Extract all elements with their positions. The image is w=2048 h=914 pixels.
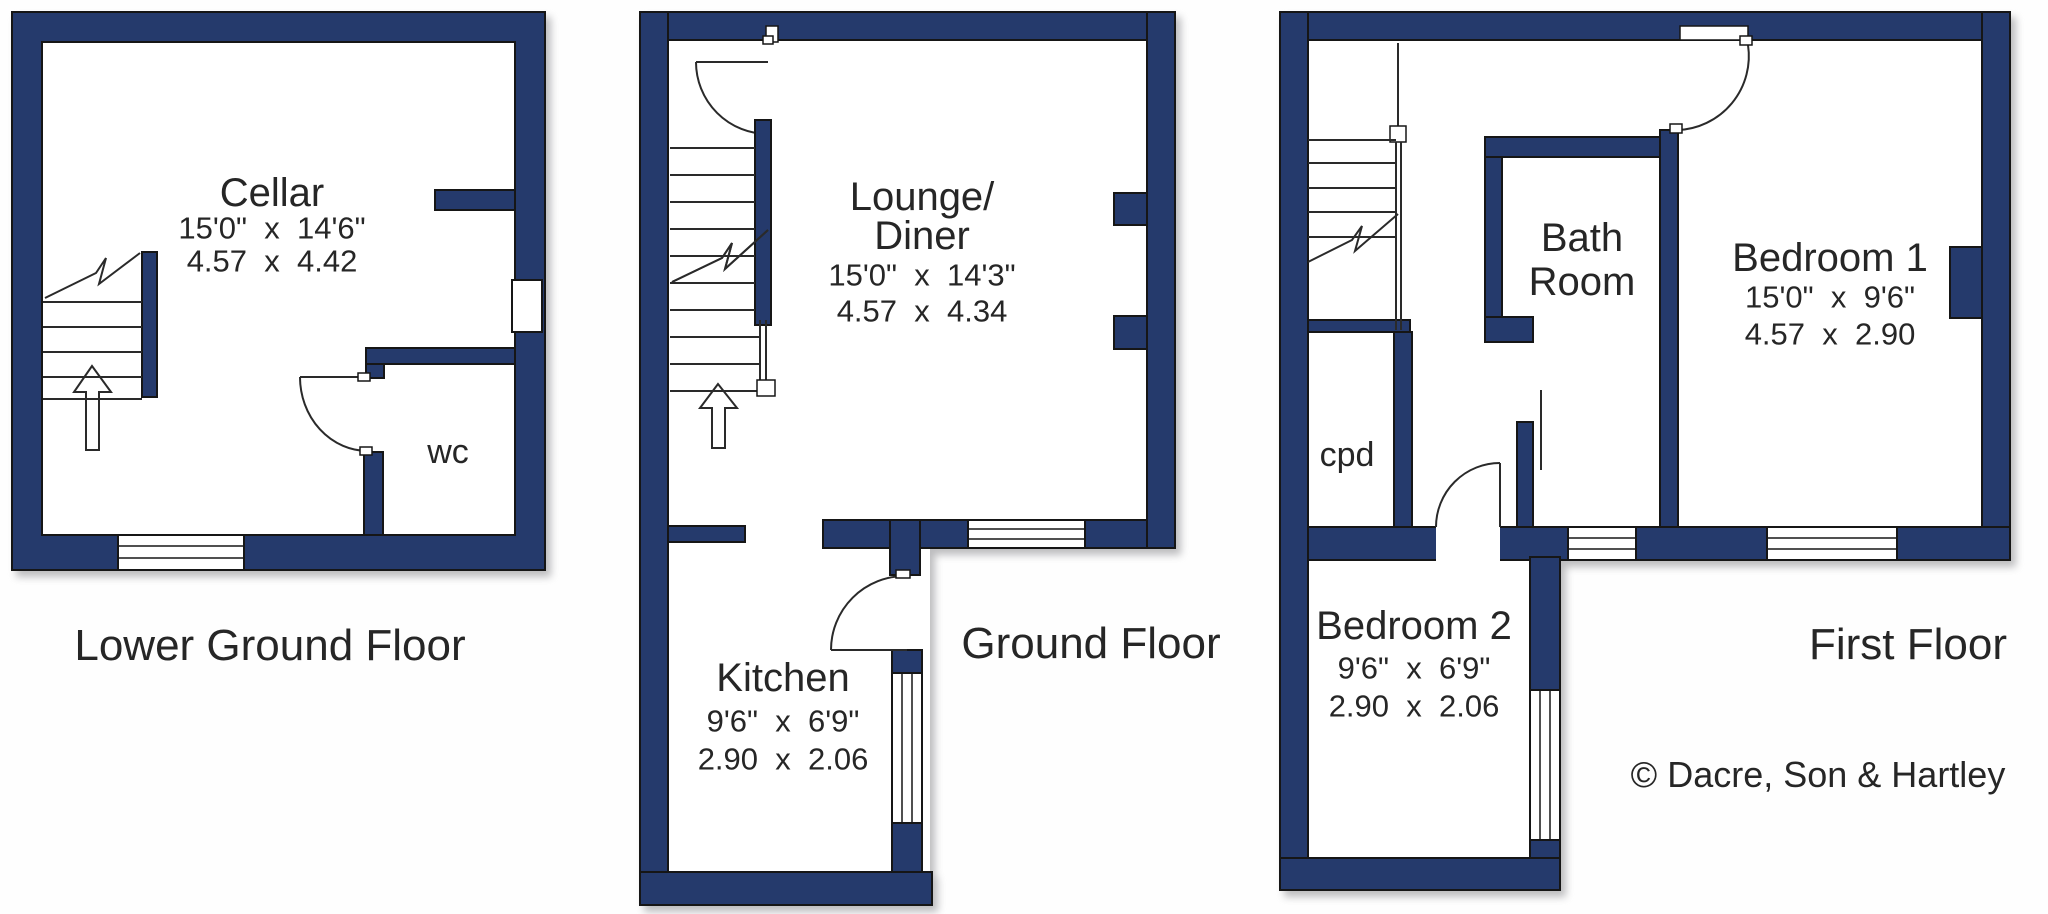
- floorplan-sheet: Cellar 15'0" x 14'6" 4.57 x 4.42 wc Lowe…: [0, 0, 2048, 914]
- ff-bedroom2-doorway: [1436, 525, 1500, 562]
- lounge-dims-metric: 4.57 x 4.34: [837, 296, 1008, 329]
- ff-bedroom2-window: [1530, 690, 1560, 840]
- copyright-notice: © Dacre, Son & Hartley: [1631, 756, 2006, 794]
- lgf-footprint: [12, 12, 545, 570]
- room-label-bath: Bath: [1541, 217, 1623, 259]
- cellar-dims-metric: 4.57 x 4.42: [187, 246, 358, 279]
- lgf-window: [118, 535, 244, 570]
- room-label-wc: wc: [427, 435, 469, 471]
- lgf-wall-stub: [435, 190, 515, 210]
- bedroom2-dims-imperial: 9'6" x 6'9": [1338, 653, 1491, 686]
- room-label-cellar: Cellar: [220, 172, 324, 214]
- lgf-wall-recess: [512, 280, 542, 332]
- bedroom2-dims-metric: 2.90 x 2.06: [1329, 691, 1500, 724]
- room-label-diner: Diner: [874, 215, 970, 257]
- room-label-kitchen: Kitchen: [716, 657, 849, 699]
- gf-kitchen-window: [892, 673, 922, 823]
- floor-label-lower-ground: Lower Ground Floor: [74, 623, 465, 669]
- lounge-dims-imperial: 15'0" x 14'3": [828, 260, 1015, 293]
- floor-label-ground: Ground Floor: [961, 621, 1220, 667]
- floor-label-first: First Floor: [1809, 622, 2007, 668]
- room-label-bedroom2: Bedroom 2: [1316, 605, 1512, 647]
- kitchen-dims-imperial: 9'6" x 6'9": [707, 706, 860, 739]
- room-label-cpd: cpd: [1320, 438, 1375, 474]
- room-label-bedroom1: Bedroom 1: [1732, 237, 1928, 279]
- room-label-lounge: Lounge/: [850, 176, 995, 218]
- kitchen-dims-metric: 2.90 x 2.06: [698, 744, 869, 777]
- bedroom1-dims-imperial: 15'0" x 9'6": [1745, 282, 1915, 315]
- ff-bedroom1-window: [1767, 527, 1897, 560]
- ff-landing-window: [1568, 527, 1636, 560]
- plan-lower-ground-floor: [12, 12, 545, 570]
- bedroom1-dims-metric: 4.57 x 2.90: [1745, 319, 1916, 352]
- room-label-bath-line2: Room: [1529, 261, 1636, 303]
- cellar-dims-imperial: 15'0" x 14'6": [178, 213, 365, 246]
- gf-lounge-window: [968, 520, 1085, 548]
